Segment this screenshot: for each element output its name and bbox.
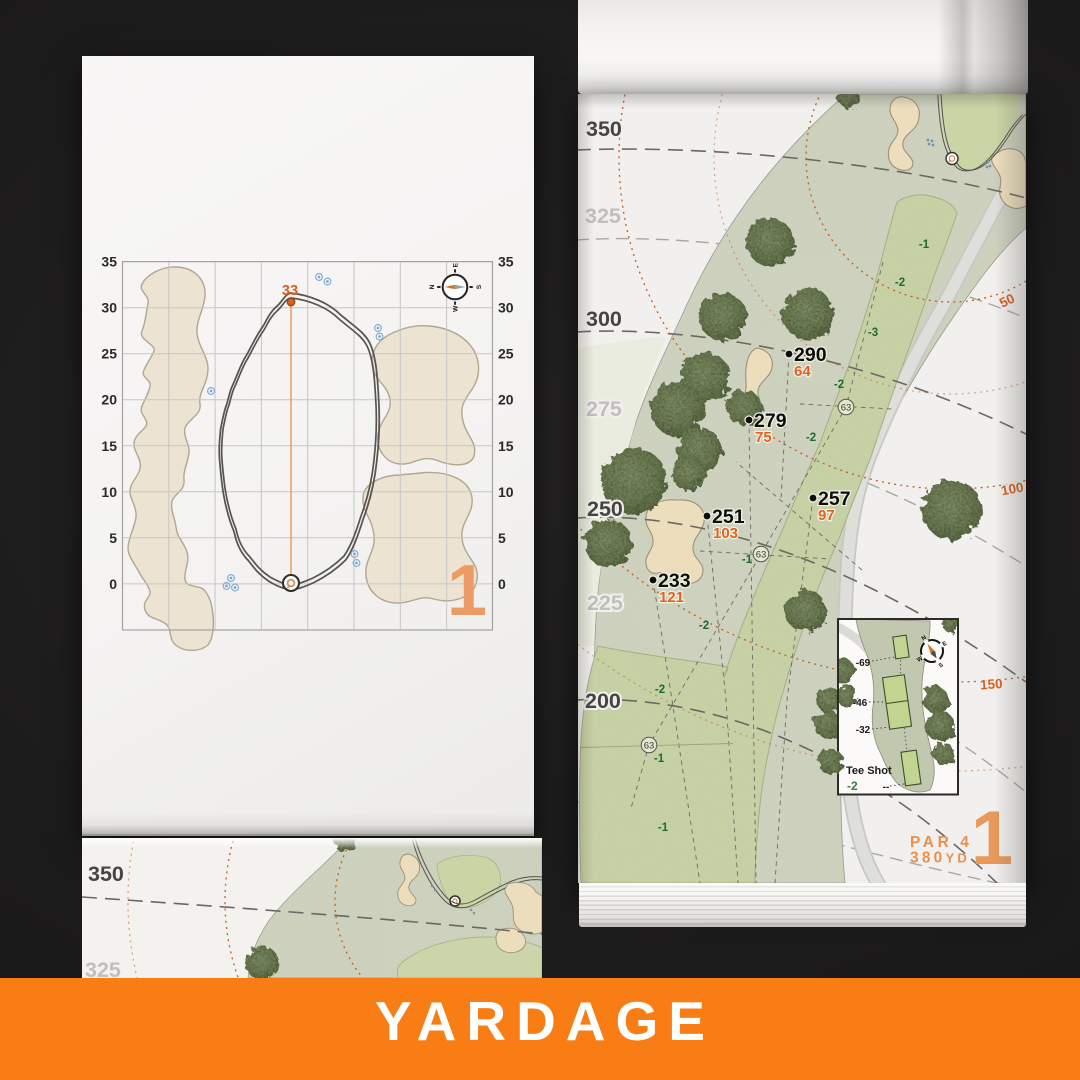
svg-text:20: 20	[101, 392, 117, 408]
svg-text:1: 1	[447, 551, 487, 631]
svg-text:0: 0	[498, 576, 506, 592]
svg-text:W: W	[452, 305, 459, 312]
svg-text:0: 0	[109, 576, 117, 592]
svg-text:25: 25	[101, 346, 117, 362]
svg-text:E: E	[452, 262, 459, 267]
svg-text:5: 5	[109, 530, 117, 546]
svg-text:325: 325	[85, 958, 121, 978]
svg-text:15: 15	[101, 438, 117, 454]
svg-text:35: 35	[498, 254, 514, 270]
svg-text:33: 33	[282, 283, 298, 299]
svg-text:N: N	[429, 284, 436, 289]
svg-text:30: 30	[101, 300, 117, 316]
svg-text:30: 30	[498, 300, 514, 316]
svg-text:350: 350	[88, 862, 124, 886]
svg-text:5: 5	[498, 530, 506, 546]
svg-text:10: 10	[101, 484, 117, 500]
svg-text:15: 15	[498, 438, 514, 454]
svg-text:10: 10	[498, 484, 514, 500]
svg-text:20: 20	[498, 392, 514, 408]
svg-text:35: 35	[101, 254, 117, 270]
svg-text:25: 25	[498, 346, 514, 362]
svg-text:S: S	[476, 284, 483, 289]
